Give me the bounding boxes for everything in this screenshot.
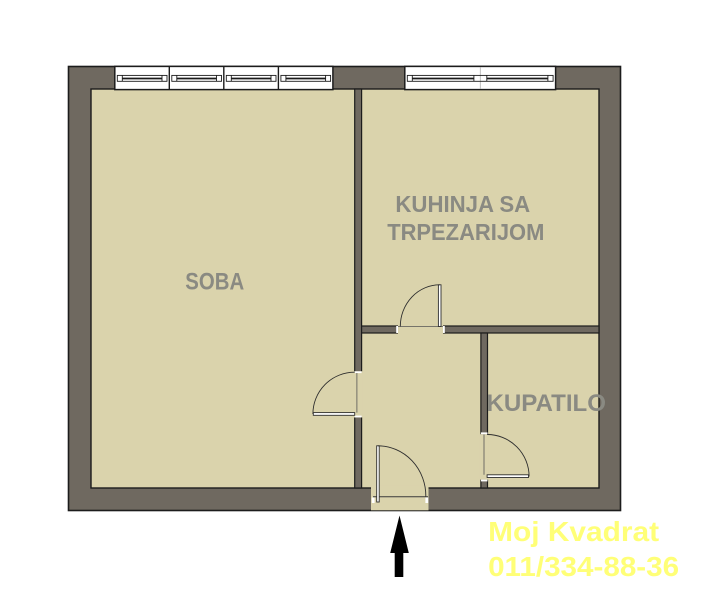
svg-text:KUPATILO: KUPATILO bbox=[487, 390, 607, 417]
svg-text:SOBA: SOBA bbox=[185, 270, 244, 296]
svg-text:KUHINJA SA: KUHINJA SA bbox=[395, 191, 530, 217]
svg-text:Moj Kvadrat: Moj Kvadrat bbox=[488, 516, 659, 547]
svg-text:011/334-88-36: 011/334-88-36 bbox=[488, 551, 679, 582]
svg-text:TRPEZARIJOM: TRPEZARIJOM bbox=[387, 219, 544, 245]
